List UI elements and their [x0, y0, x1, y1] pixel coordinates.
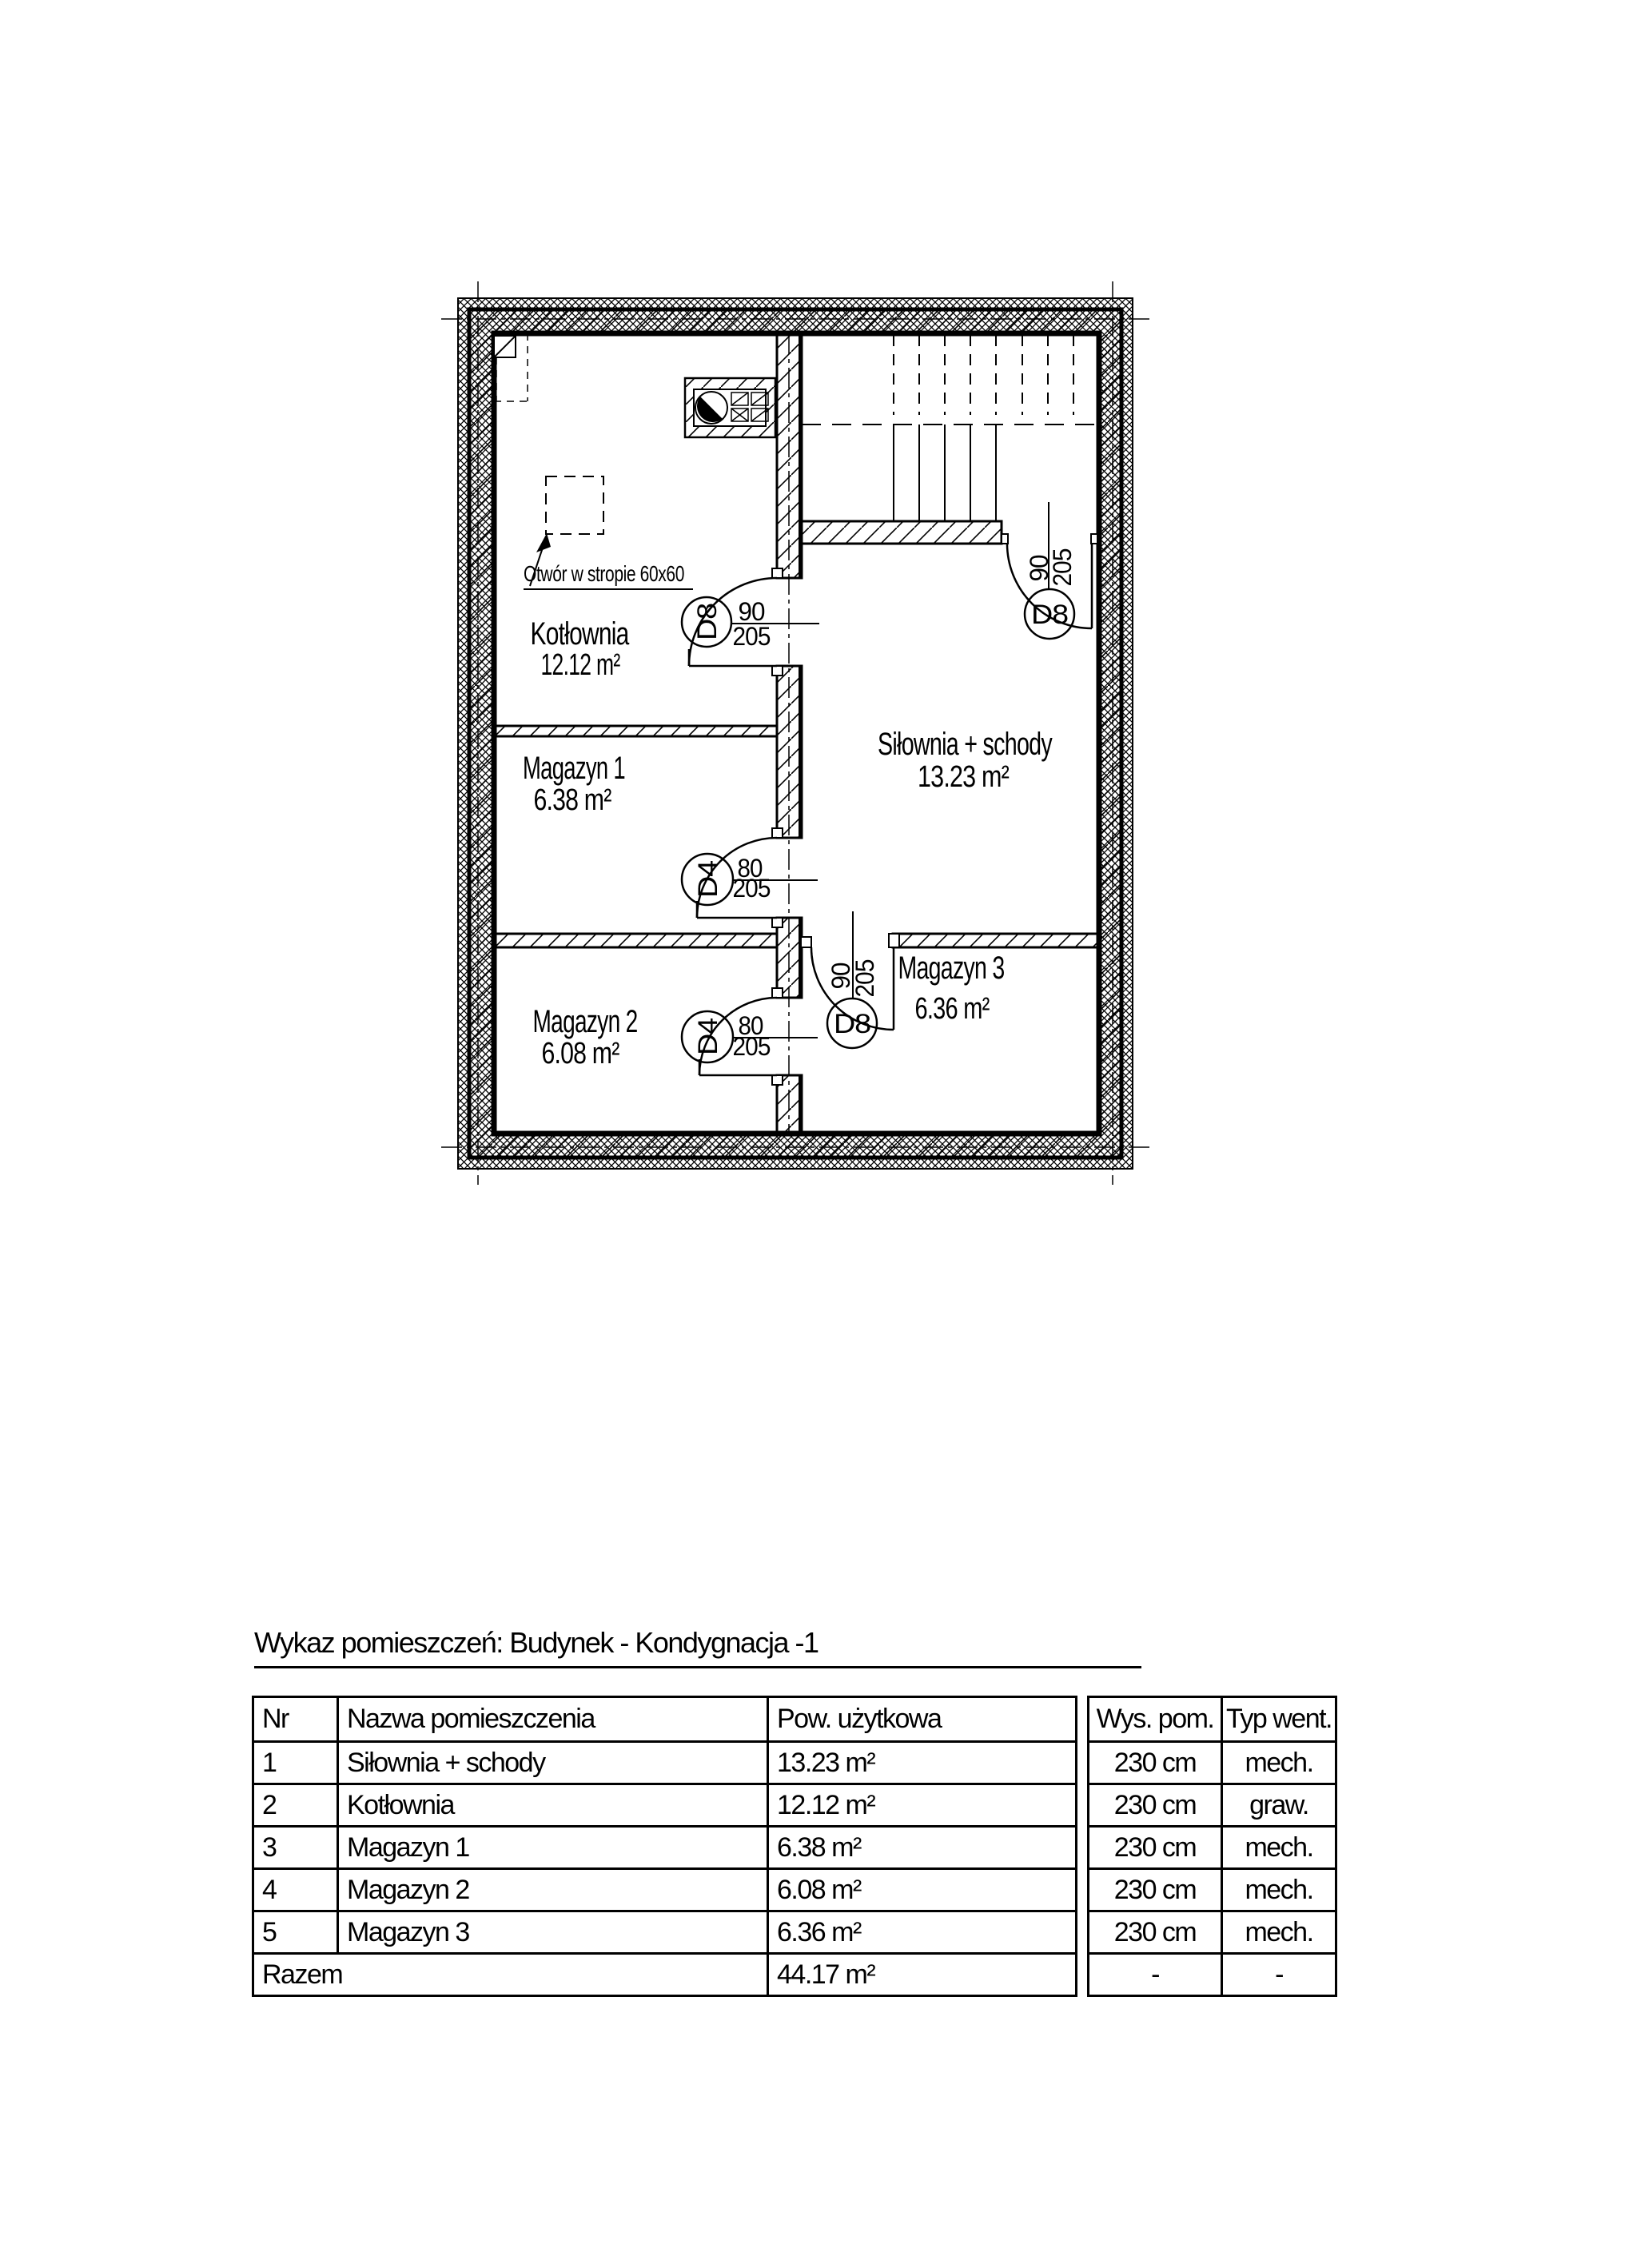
schedule-title: Wykaz pomieszczeń: Budynek - Kondygnacja… [254, 1626, 1141, 1668]
cell-typ: mech. [1222, 1911, 1336, 1954]
table-header-row: Wys. pom. Typ went. [1089, 1697, 1336, 1742]
cell-wys: 230 cm [1089, 1869, 1222, 1911]
cell-wys: 230 cm [1089, 1911, 1222, 1954]
room-label-magazyn2: Magazyn 2 [533, 1004, 638, 1039]
cell-nazwa: Siłownia + schody [338, 1742, 768, 1784]
cell-pow: 12.12 m² [768, 1784, 1077, 1827]
room-schedule-table: Nr Nazwa pomieszczenia Pow. użytkowa 1 S… [252, 1696, 1077, 1997]
door-tag-magazyn3: D8 [834, 1009, 870, 1039]
room-label-magazyn3: Magazyn 3 [898, 951, 1005, 986]
annotation-text: Otwór w stropie 60x60 [524, 561, 684, 586]
cell-pow: 6.38 m² [768, 1827, 1077, 1869]
cell-wys: 230 cm [1089, 1784, 1222, 1827]
cell-wys: 230 cm [1089, 1827, 1222, 1869]
cell-nazwa: Magazyn 3 [338, 1911, 768, 1954]
total-typ: - [1222, 1954, 1336, 1996]
header-pow: Pow. użytkowa [768, 1697, 1077, 1742]
room-area-silownia: 13.23 m² [918, 760, 1009, 794]
chimney-block [685, 378, 775, 437]
total-wys: - [1089, 1954, 1222, 1996]
room-area-kotlownia: 12.12 m² [541, 648, 620, 682]
cell-nazwa: Kotłownia [338, 1784, 768, 1827]
table-row: 230 cm mech. [1089, 1742, 1336, 1784]
door-tag-magazyn1: D4 [693, 861, 723, 898]
cell-typ: mech. [1222, 1869, 1336, 1911]
header-wys: Wys. pom. [1089, 1697, 1222, 1742]
room-area-magazyn2: 6.08 m² [542, 1037, 619, 1070]
door-tag-stairs: D8 [1031, 600, 1068, 630]
total-label: Razem [253, 1954, 768, 1996]
floor-plan: Otwór w stropie 60x60 D8 [436, 272, 1171, 1195]
svg-text:205: 205 [1048, 548, 1077, 586]
cell-typ: mech. [1222, 1827, 1336, 1869]
table-row: 5 Magazyn 3 6.36 m² [253, 1911, 1077, 1954]
table-total-row: Razem 44.17 m² [253, 1954, 1077, 1996]
room-label-magazyn1: Magazyn 1 [523, 751, 625, 786]
table-row: 1 Siłownia + schody 13.23 m² [253, 1742, 1077, 1784]
svg-text:205: 205 [733, 622, 771, 651]
table-row: 230 cm mech. [1089, 1869, 1336, 1911]
cell-nr: 1 [253, 1742, 338, 1784]
cell-typ: graw. [1222, 1784, 1336, 1827]
header-typ: Typ went. [1222, 1697, 1336, 1742]
svg-text:205: 205 [850, 959, 879, 997]
svg-text:205: 205 [733, 874, 771, 903]
table-row: 230 cm graw. [1089, 1784, 1336, 1827]
room-label-silownia: Siłownia + schody [878, 727, 1053, 762]
table-row: 230 cm mech. [1089, 1827, 1336, 1869]
table-row: 230 cm mech. [1089, 1911, 1336, 1954]
cell-pow: 6.36 m² [768, 1911, 1077, 1954]
cell-nazwa: Magazyn 1 [338, 1827, 768, 1869]
cell-nr: 4 [253, 1869, 338, 1911]
table-row: 2 Kotłownia 12.12 m² [253, 1784, 1077, 1827]
door-tag-kotlownia: D8 [692, 604, 723, 640]
cell-wys: 230 cm [1089, 1742, 1222, 1784]
cell-nr: 2 [253, 1784, 338, 1827]
table-header-row: Nr Nazwa pomieszczenia Pow. użytkowa [253, 1697, 1077, 1742]
cell-typ: mech. [1222, 1742, 1336, 1784]
cell-pow: 13.23 m² [768, 1742, 1077, 1784]
svg-text:205: 205 [733, 1032, 771, 1061]
header-nr: Nr [253, 1697, 338, 1742]
room-area-magazyn1: 6.38 m² [534, 783, 611, 817]
total-area: 44.17 m² [768, 1954, 1077, 1996]
room-area-magazyn3: 6.36 m² [915, 992, 990, 1026]
room-label-kotlownia: Kotłownia [531, 616, 630, 652]
table-row: 3 Magazyn 1 6.38 m² [253, 1827, 1077, 1869]
table-total-row: - - [1089, 1954, 1336, 1996]
cell-nr: 5 [253, 1911, 338, 1954]
cell-pow: 6.08 m² [768, 1869, 1077, 1911]
door-tag-magazyn2: D4 [693, 1018, 723, 1055]
cell-nr: 3 [253, 1827, 338, 1869]
cell-nazwa: Magazyn 2 [338, 1869, 768, 1911]
table-row: 4 Magazyn 2 6.08 m² [253, 1869, 1077, 1911]
header-nazwa: Nazwa pomieszczenia [338, 1697, 768, 1742]
page: { "colors": { "ink": "#000000", "paper":… [0, 0, 1625, 2268]
ventilation-table: Wys. pom. Typ went. 230 cm mech. 230 cm … [1087, 1696, 1337, 1997]
